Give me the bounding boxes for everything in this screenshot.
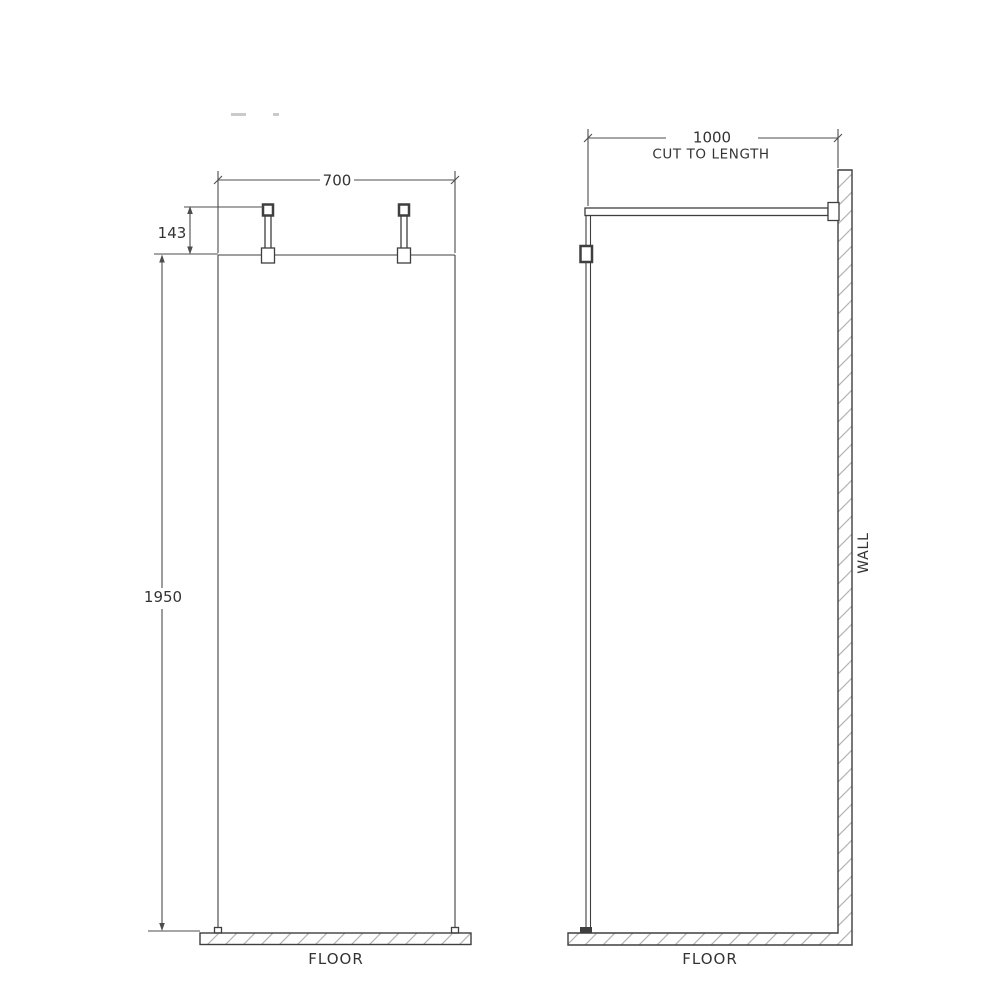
front-floor: FLOOR bbox=[200, 933, 471, 968]
side-view: FLOOR WALL 1000 CUT bbox=[568, 129, 872, 969]
cut-to-length-label: CUT TO LENGTH bbox=[652, 147, 769, 163]
support-post-right bbox=[398, 205, 411, 264]
support-post-left bbox=[262, 205, 275, 264]
dim-1950: 1950 bbox=[144, 254, 218, 931]
post-rod bbox=[265, 212, 271, 250]
glass-edge bbox=[586, 216, 591, 933]
artifact-dot bbox=[273, 113, 279, 116]
glass-foot-right bbox=[452, 928, 459, 934]
dim-1950-arrow-down bbox=[159, 923, 165, 931]
dim-700-label: 700 bbox=[323, 172, 352, 190]
dim-1000-label: 1000 bbox=[693, 129, 731, 147]
floor-slab bbox=[200, 933, 471, 945]
wall-bracket bbox=[828, 203, 839, 221]
post-top-cap bbox=[263, 205, 273, 216]
front-floor-label: FLOOR bbox=[308, 950, 364, 968]
front-view: FLOOR 700 143 bbox=[144, 171, 471, 968]
artifact-dash bbox=[231, 113, 246, 116]
glass-panel bbox=[215, 255, 459, 933]
post-rod bbox=[401, 212, 407, 250]
glass-edge-foot bbox=[580, 927, 592, 933]
dim-1950-arrow-up bbox=[159, 255, 165, 263]
glass-foot-left bbox=[215, 928, 222, 934]
post-glass-clamp bbox=[262, 248, 275, 263]
dim-1000: 1000 CUT TO LENGTH bbox=[584, 129, 842, 207]
support-bar bbox=[585, 203, 839, 221]
wall-label: WALL bbox=[856, 532, 872, 573]
scan-artifact-marks bbox=[231, 113, 279, 116]
dim-700: 700 bbox=[214, 171, 459, 253]
dim-1950-label: 1950 bbox=[144, 588, 182, 606]
post-glass-clamp bbox=[398, 248, 411, 263]
support-bar-tube bbox=[585, 208, 828, 216]
side-floor-label: FLOOR bbox=[682, 950, 738, 968]
glass-panel-edge bbox=[580, 216, 592, 934]
wall-and-floor bbox=[568, 170, 852, 945]
glass-edge-clamp bbox=[581, 246, 593, 262]
shower-screen-drawing: FLOOR 700 143 bbox=[0, 0, 1000, 1000]
technical-drawing-page: FLOOR 700 143 bbox=[0, 0, 1000, 1000]
post-top-cap bbox=[399, 205, 409, 216]
dim-143-arrow-down bbox=[187, 247, 193, 255]
dim-143: 143 bbox=[158, 206, 263, 255]
dim-143-label: 143 bbox=[158, 224, 187, 242]
